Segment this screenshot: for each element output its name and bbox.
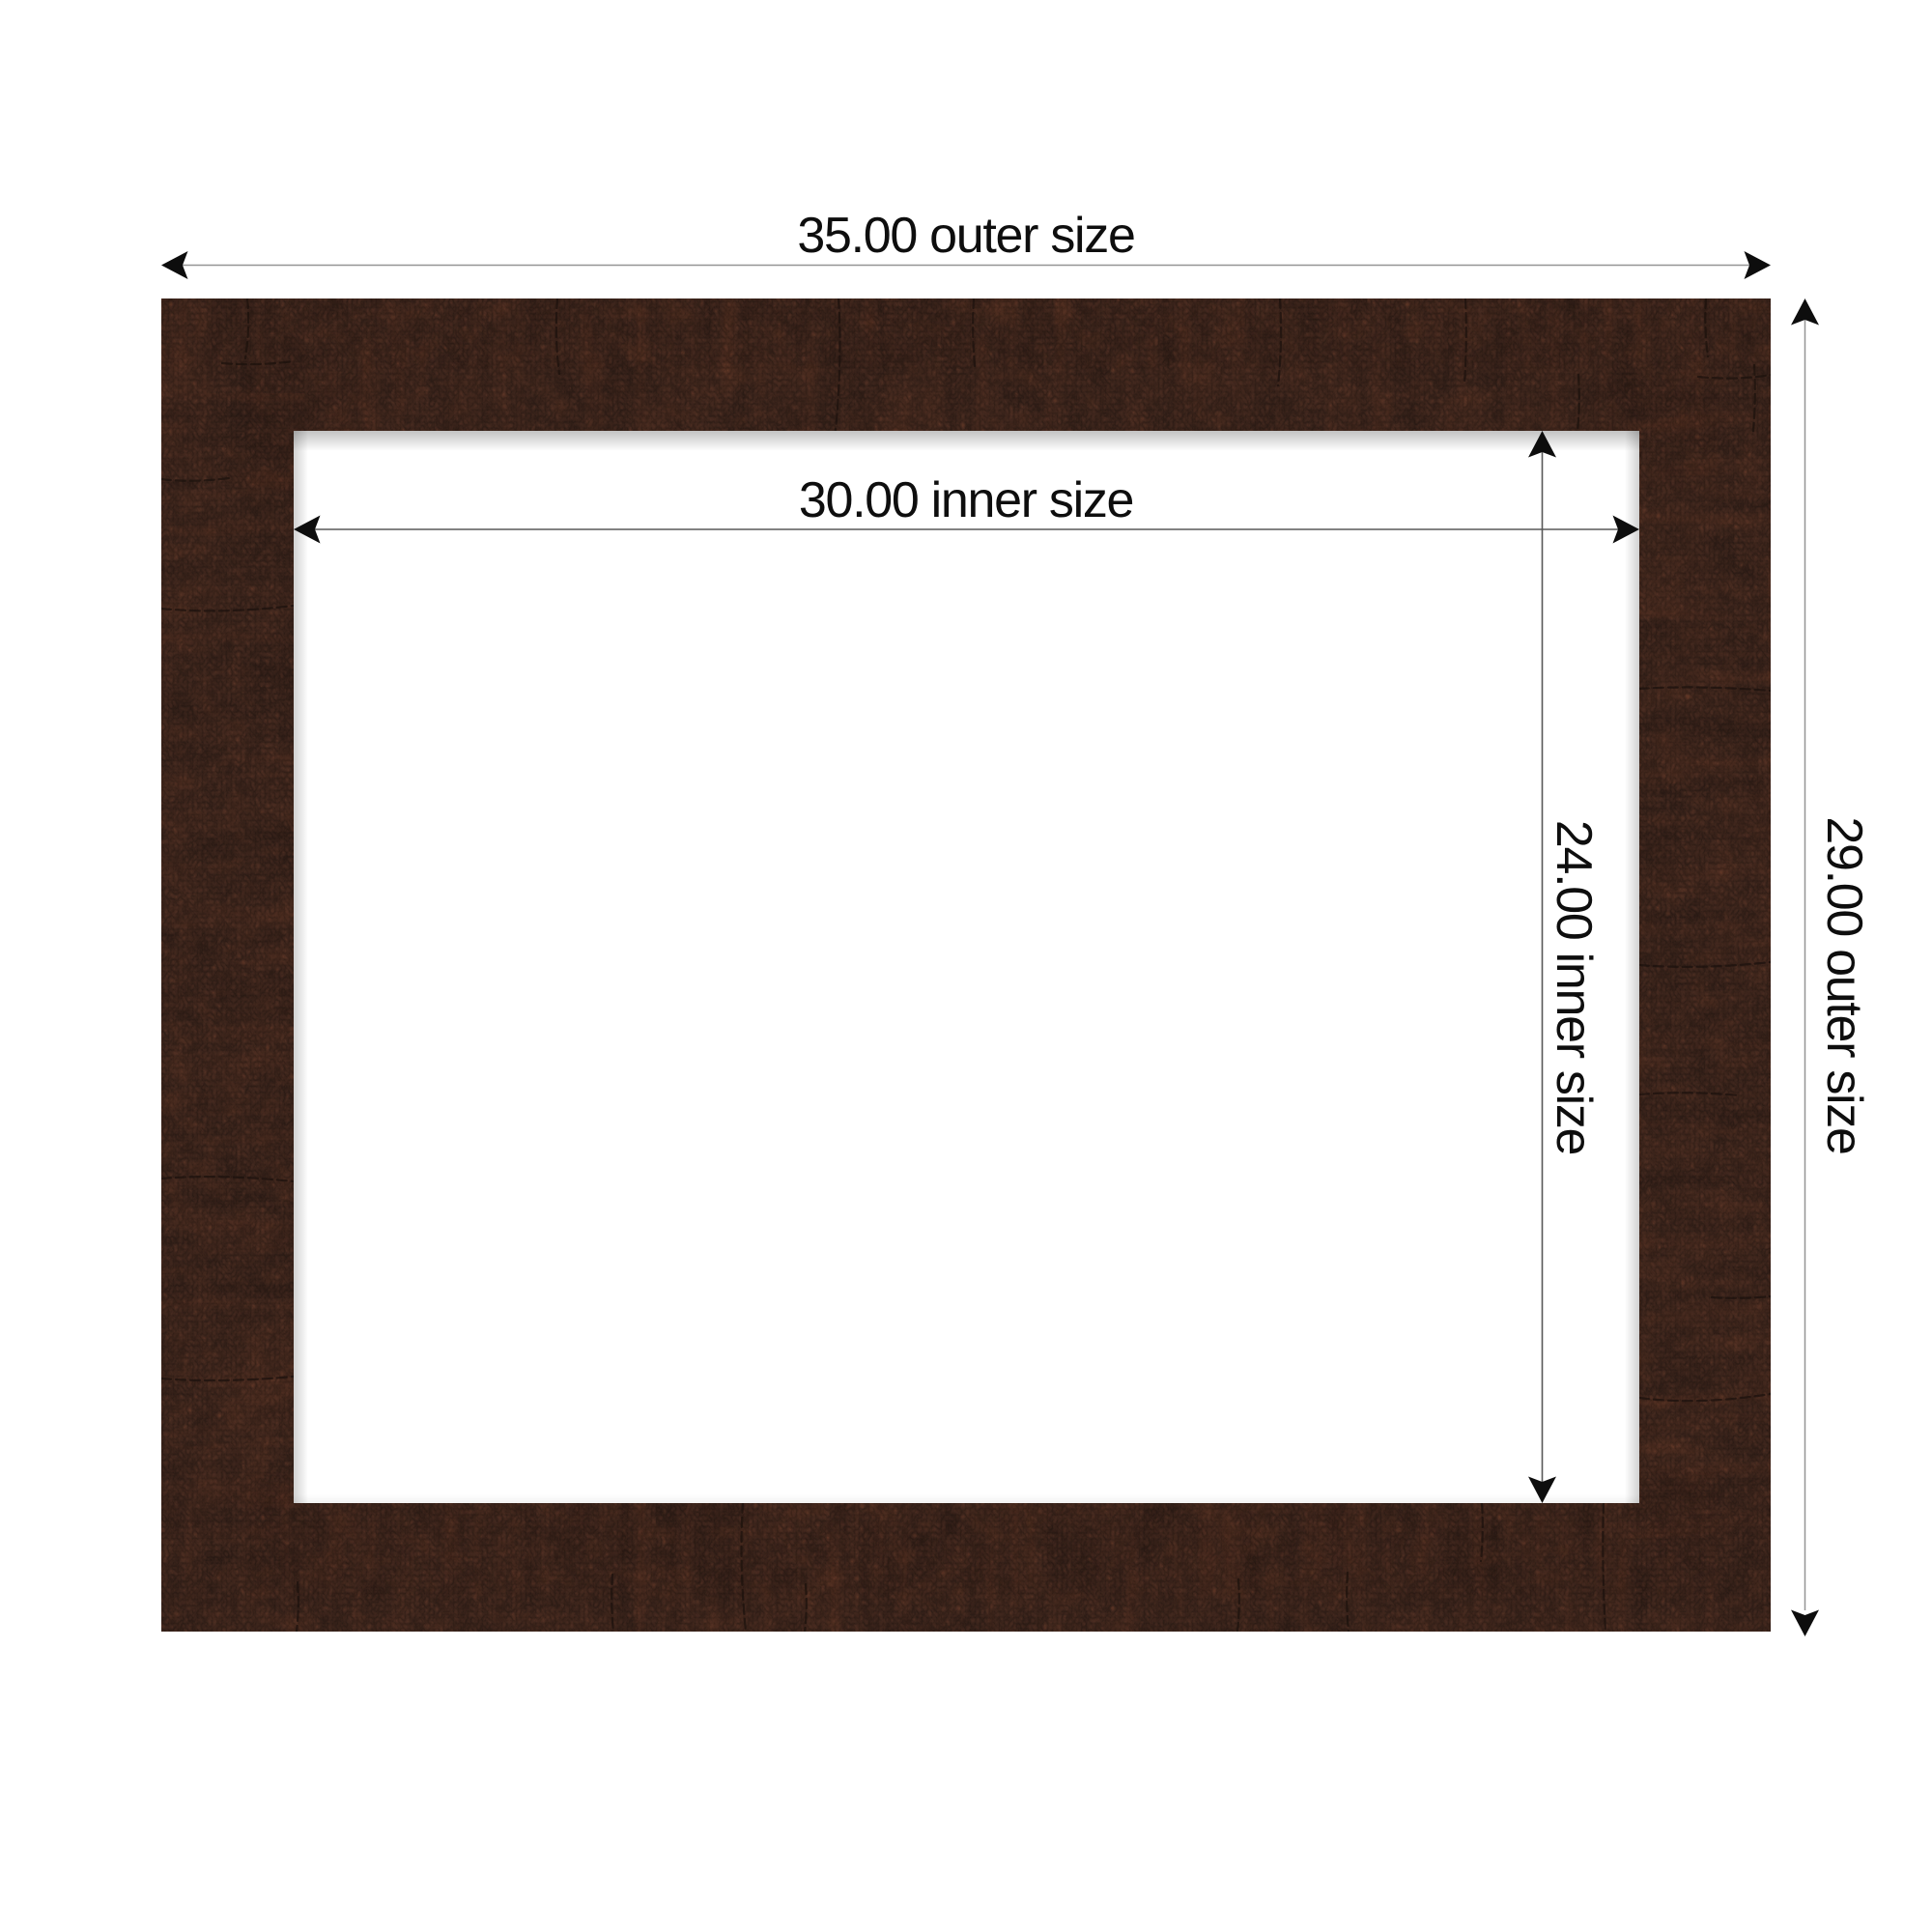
svg-text:35.00 outer size: 35.00 outer size [797,208,1134,264]
svg-text:24.00 inner size: 24.00 inner size [1546,820,1602,1154]
svg-text:29.00 outer size: 29.00 outer size [1816,816,1872,1153]
svg-text:30.00 inner size: 30.00 inner size [799,472,1133,528]
